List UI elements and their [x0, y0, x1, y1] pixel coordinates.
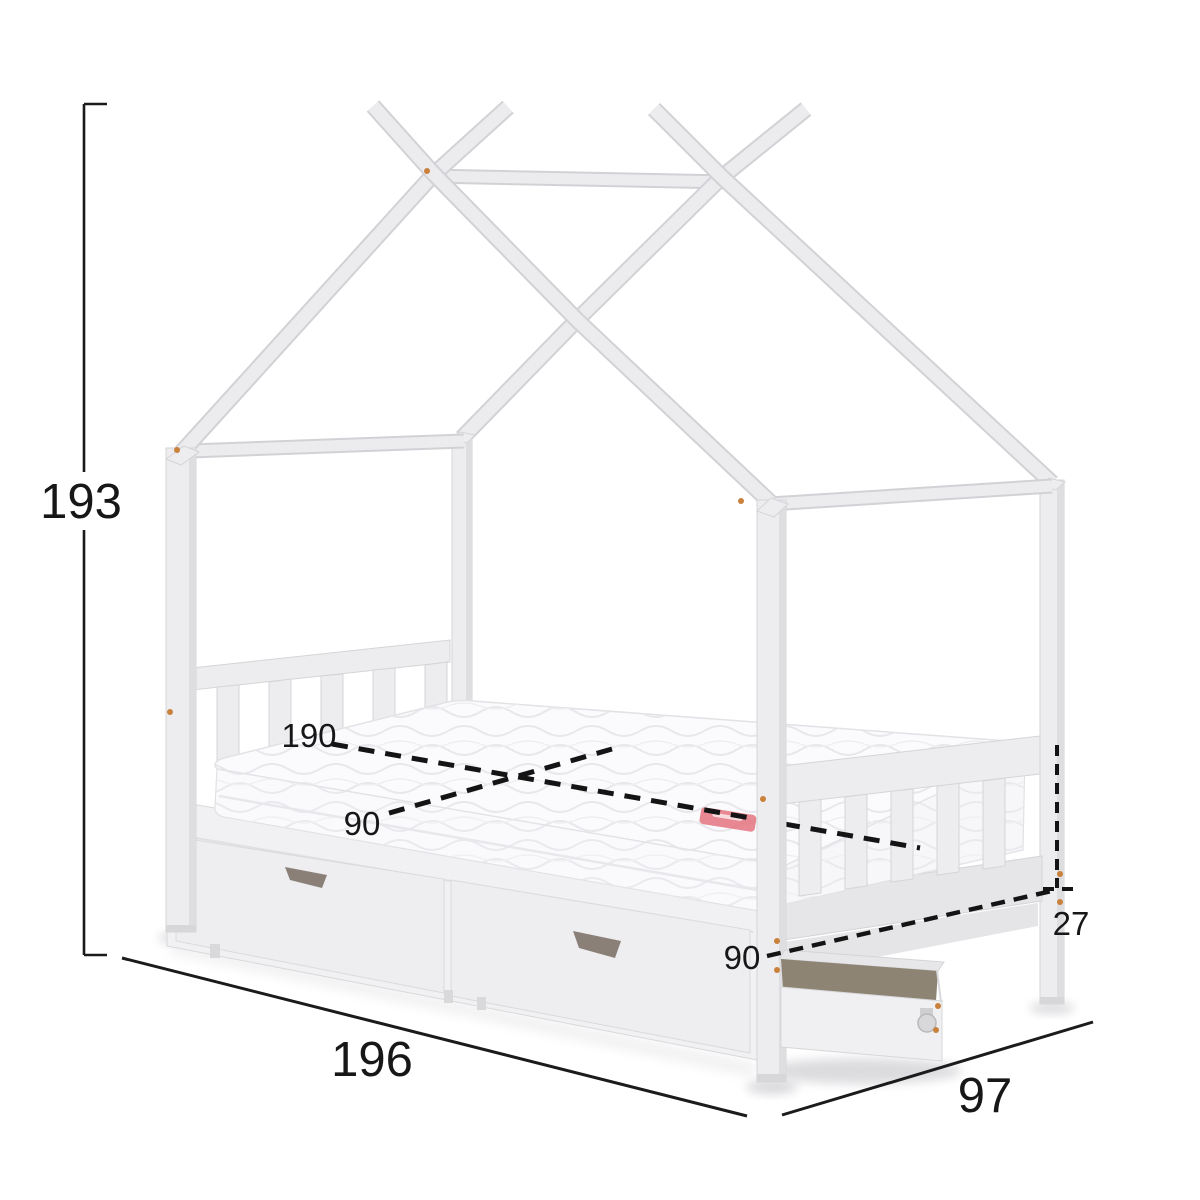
- bed-dimension-diagram: 193 196 97 190 90 27 90: [0, 0, 1200, 1200]
- label-overall-height: 193: [40, 475, 122, 529]
- dimension-overall-height: 193: [40, 104, 122, 955]
- pullout-drawer: [779, 950, 944, 1061]
- eave-beam-foot: [770, 486, 1052, 504]
- label-foot-end-width: 90: [724, 939, 761, 976]
- label-overall-length: 196: [331, 1033, 413, 1087]
- roof-frame: [430, 109, 1052, 483]
- diagram-canvas: 193 196 97 190 90 27 90: [0, 0, 1200, 1200]
- drawer-foot: [444, 990, 453, 1003]
- roof-beam-rear-foot: [654, 109, 1052, 483]
- label-base-height: 27: [1053, 905, 1090, 942]
- roof-beam-front-head: [181, 107, 508, 453]
- post-head-front: [166, 446, 199, 932]
- roof-beam-rear-head: [462, 109, 806, 438]
- label-mattress-length: 190: [281, 717, 336, 754]
- label-mattress-width: 90: [344, 805, 381, 842]
- drawer-foot: [210, 944, 220, 958]
- eave-beam-head: [190, 441, 464, 451]
- ridge-beam: [430, 176, 728, 182]
- label-overall-width: 97: [958, 1069, 1013, 1123]
- drawer-foot: [477, 997, 486, 1010]
